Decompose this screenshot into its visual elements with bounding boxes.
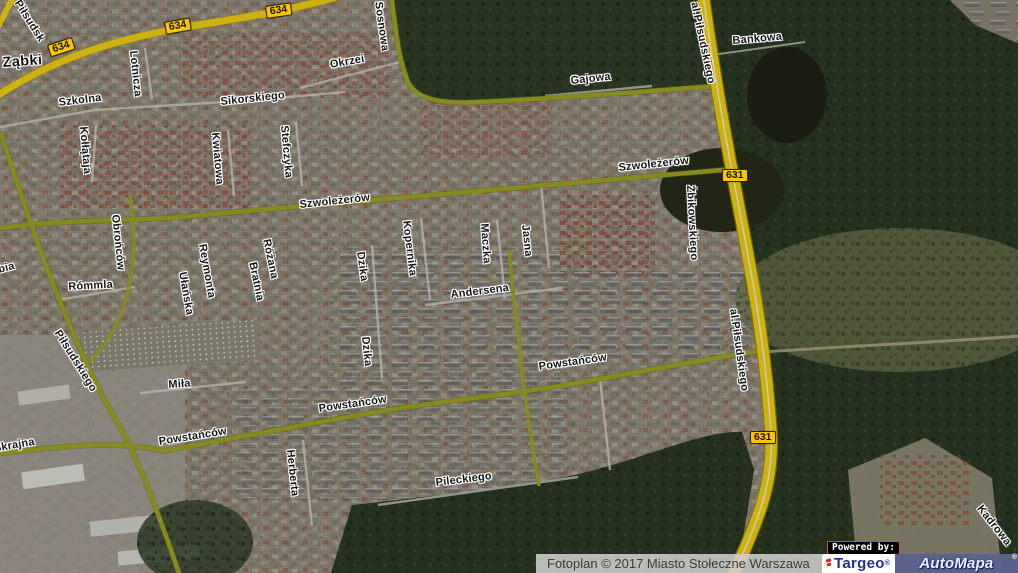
targeo-logo[interactable]: Targeo ® <box>822 554 895 573</box>
map-viewport[interactable]: PiłsudskLotniczaSzkolnaSikorskiegoOkrzei… <box>0 0 1018 573</box>
targeo-registered-mark: ® <box>885 559 890 568</box>
targeo-logo-text: Targeo <box>834 555 885 572</box>
fotoplan-copyright: Fotoplan © 2017 Miasto Stołeczne Warszaw… <box>547 556 810 571</box>
aerial-imagery <box>0 0 1018 573</box>
targeo-mark-icon <box>826 558 833 569</box>
logo-bar: Targeo ® AutoMapa ® <box>822 554 1018 573</box>
automapa-registered-mark: ® <box>1012 554 1017 561</box>
automapa-logo-text: AutoMapa <box>919 555 993 572</box>
powered-by-label: Powered by: <box>827 541 900 554</box>
automapa-logo[interactable]: AutoMapa ® <box>895 554 1018 573</box>
image-grain <box>0 0 1018 573</box>
